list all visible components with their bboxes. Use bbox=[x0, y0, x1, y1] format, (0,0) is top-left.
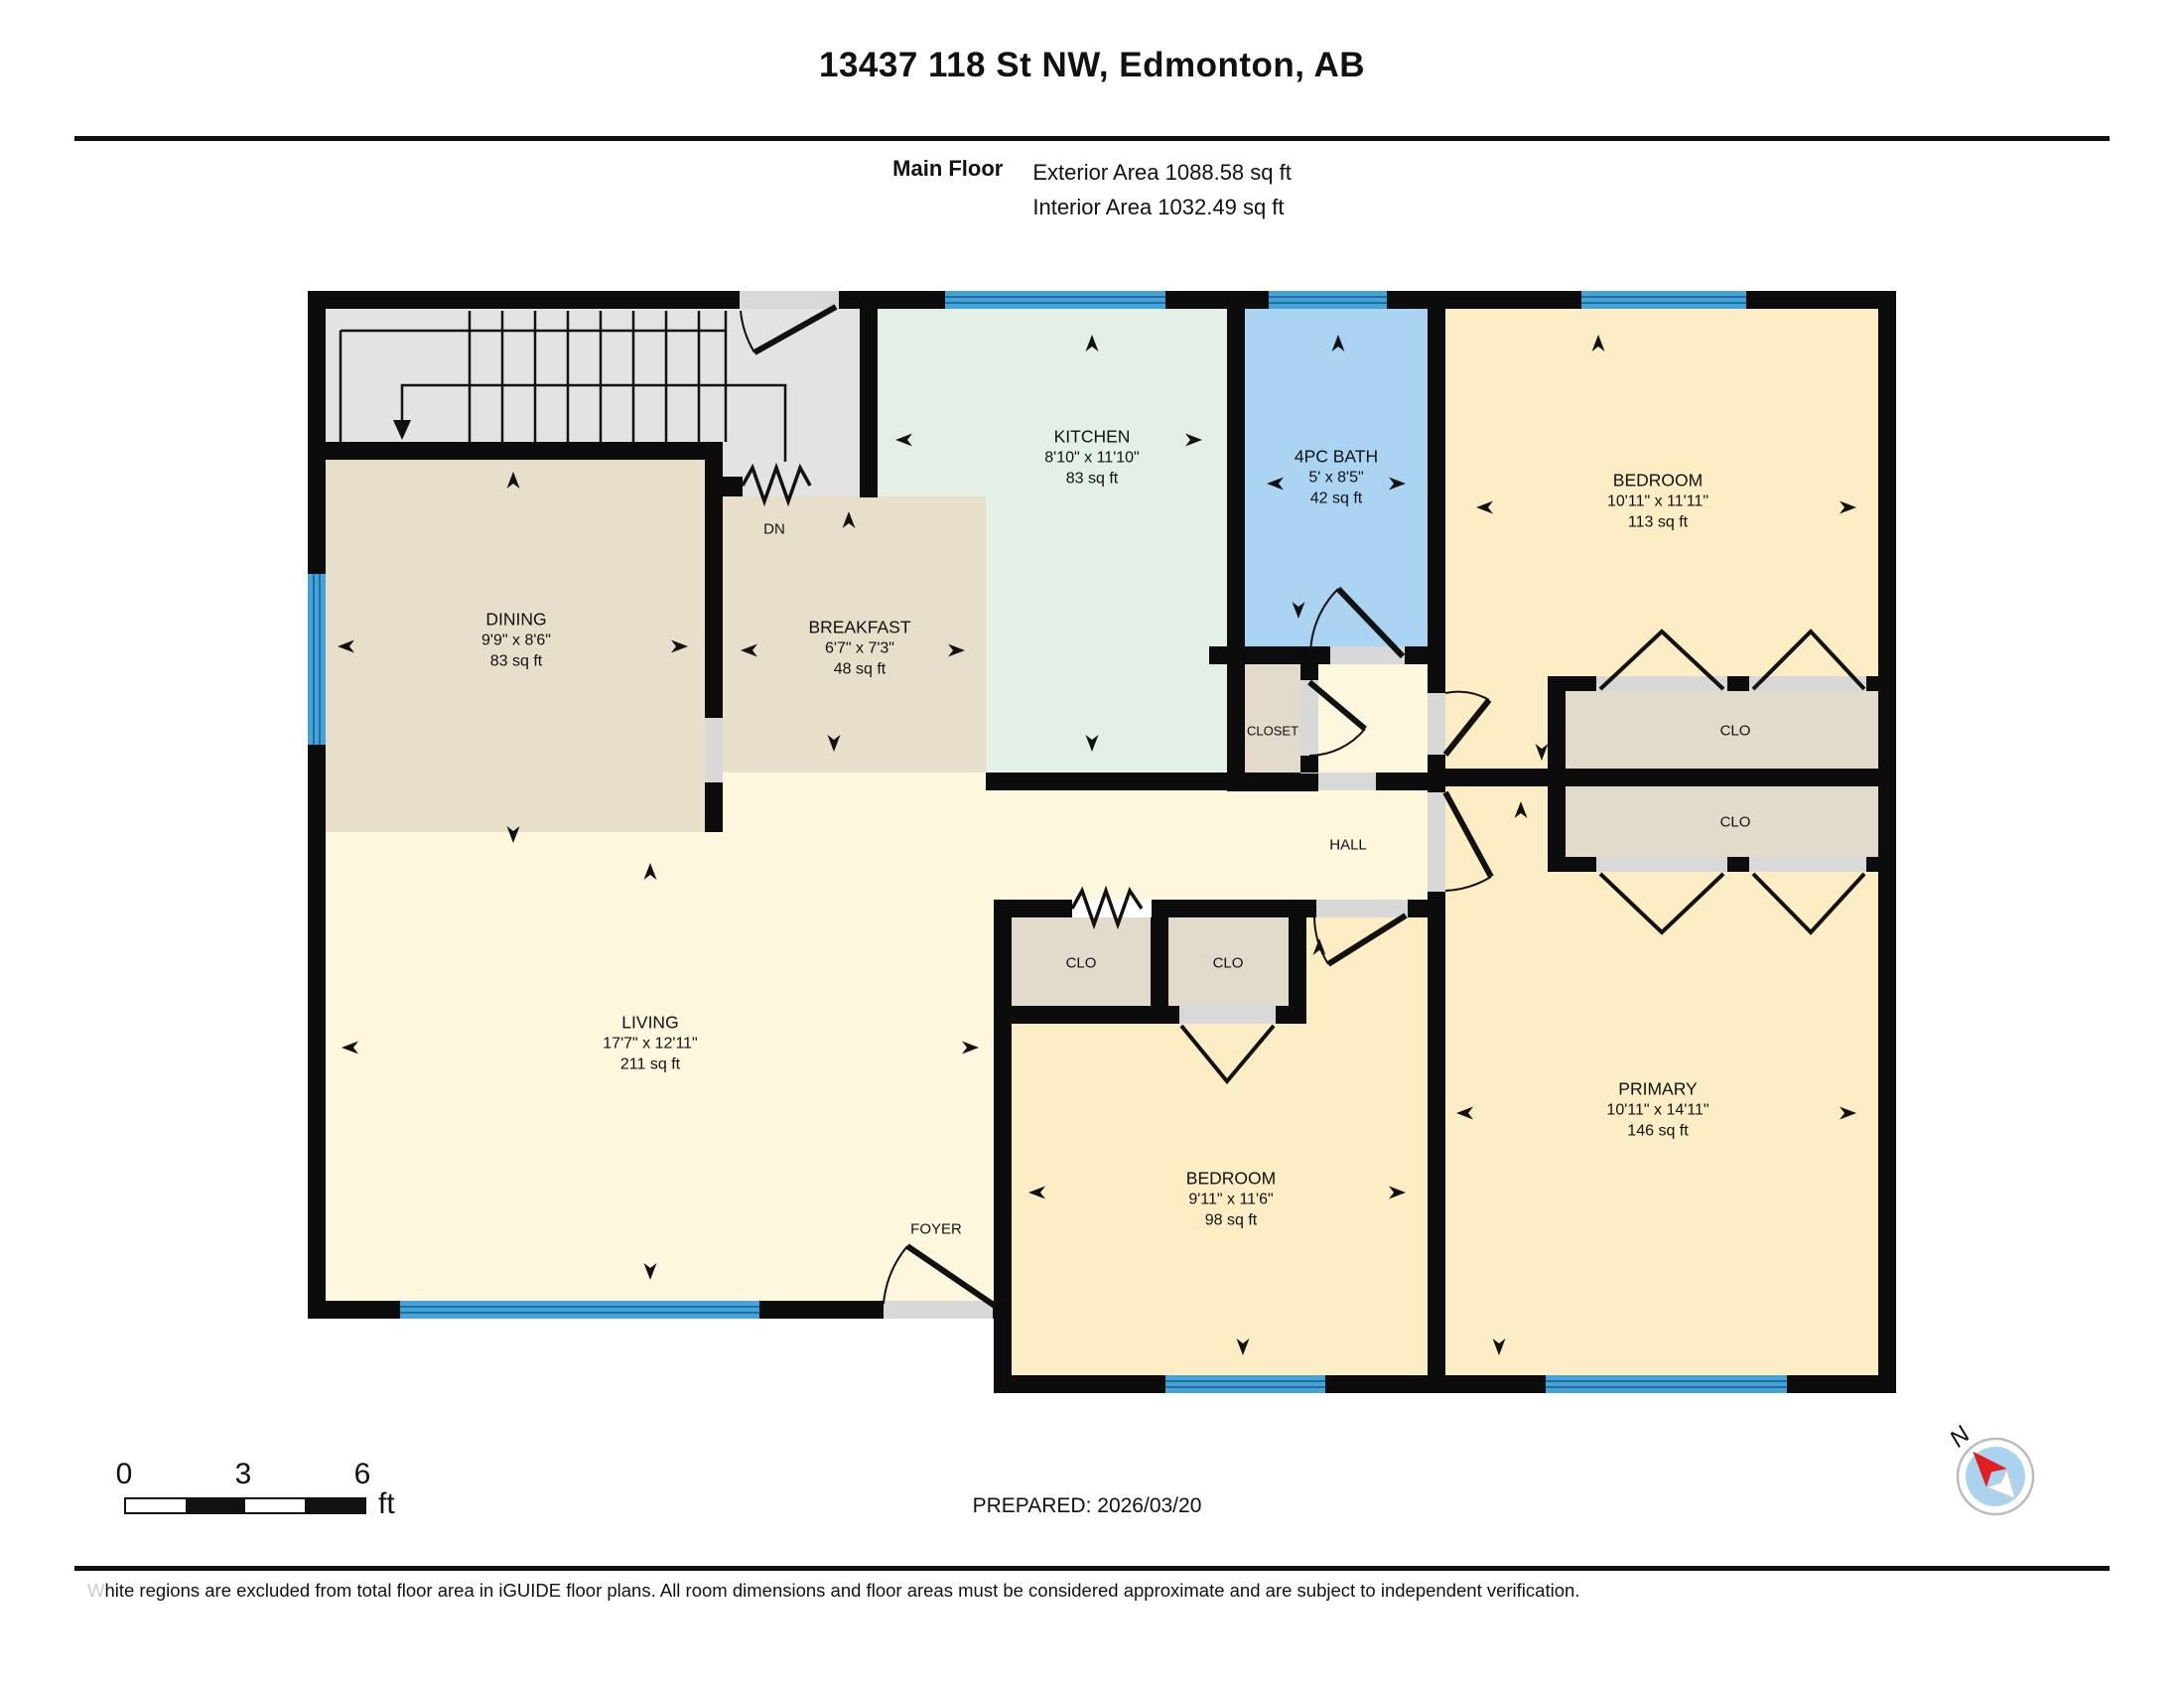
room-label-dining: DINING 9'9" x 8'6" 83 sq ft bbox=[481, 610, 551, 672]
label-clo-a: CLO bbox=[1720, 723, 1751, 740]
room-label-primary: PRIMARY 10'11" x 14'11" 146 sq ft bbox=[1606, 1079, 1708, 1142]
room-label-bedroom-bottom: BEDROOM 9'11" x 11'6" 98 sq ft bbox=[1186, 1169, 1276, 1231]
room-label-bedroom-top: BEDROOM 10'11" x 11'11" 113 sq ft bbox=[1607, 471, 1708, 533]
page-title: 13437 118 St NW, Edmonton, AB bbox=[0, 46, 2184, 85]
label-clo-right: CLO bbox=[1213, 955, 1244, 972]
header-divider bbox=[74, 136, 2110, 141]
prepared-date: PREPARED: 2026/03/20 bbox=[973, 1494, 1202, 1518]
room-label-breakfast: BREAKFAST 6'7" x 7'3" 48 sq ft bbox=[808, 618, 910, 680]
scale-tick-3: 3 bbox=[235, 1458, 252, 1491]
footer-divider bbox=[74, 1566, 2110, 1571]
room-label-kitchen: KITCHEN 8'10" x 11'10" 83 sq ft bbox=[1044, 427, 1139, 490]
scale-tick-6: 6 bbox=[354, 1458, 371, 1491]
scale-unit: ft bbox=[378, 1487, 395, 1521]
disclaimer-text: White regions are excluded from total fl… bbox=[87, 1580, 1579, 1602]
scale-bar-segments bbox=[124, 1497, 366, 1514]
label-clo-b: CLO bbox=[1720, 814, 1751, 831]
label-clo-left: CLO bbox=[1066, 955, 1097, 972]
label-hall: HALL bbox=[1329, 837, 1367, 854]
interior-area: Interior Area 1032.49 sq ft bbox=[1032, 190, 1292, 224]
scale-tick-0: 0 bbox=[116, 1458, 133, 1491]
floor-summary: Main Floor Exterior Area 1088.58 sq ft I… bbox=[0, 155, 2184, 224]
room-label-bath: 4PC BATH 5' x 8'5" 42 sq ft bbox=[1295, 447, 1378, 509]
scale-bar: 0 3 6 ft bbox=[124, 1458, 442, 1527]
label-foyer: FOYER bbox=[910, 1221, 962, 1238]
exterior-area: Exterior Area 1088.58 sq ft bbox=[1032, 155, 1292, 190]
label-stairs-down: DN bbox=[763, 521, 785, 538]
room-label-living: LIVING 17'7" x 12'11" 211 sq ft bbox=[603, 1013, 697, 1075]
floor-label: Main Floor bbox=[892, 155, 1003, 182]
floor-plan: DINING 9'9" x 8'6" 83 sq ft BREAKFAST 6'… bbox=[308, 291, 1896, 1408]
floor-areas: Exterior Area 1088.58 sq ft Interior Are… bbox=[1032, 155, 1292, 224]
label-closet: CLOSET bbox=[1247, 724, 1298, 739]
compass-icon: N bbox=[1936, 1415, 2055, 1534]
floorplan-page: 13437 118 St NW, Edmonton, AB Main Floor… bbox=[0, 0, 2184, 1688]
